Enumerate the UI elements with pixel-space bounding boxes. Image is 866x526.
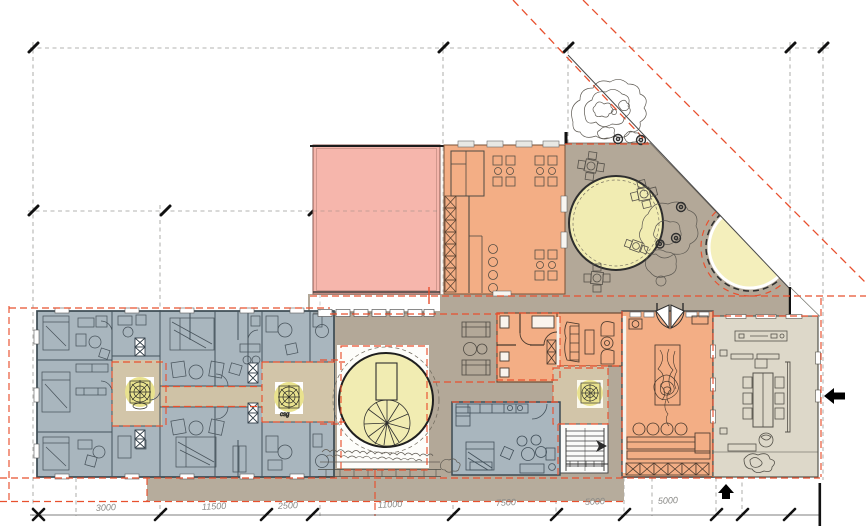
svg-text:11000: 11000 — [378, 499, 403, 510]
svg-text:11500: 11500 — [202, 501, 227, 512]
svg-text:csg: csg — [280, 412, 290, 418]
svg-text:2500: 2500 — [277, 500, 299, 511]
svg-text:7500: 7500 — [496, 497, 517, 508]
svg-text:5000: 5000 — [658, 495, 679, 506]
svg-text:3000: 3000 — [96, 502, 117, 513]
svg-text:5000: 5000 — [585, 496, 606, 507]
